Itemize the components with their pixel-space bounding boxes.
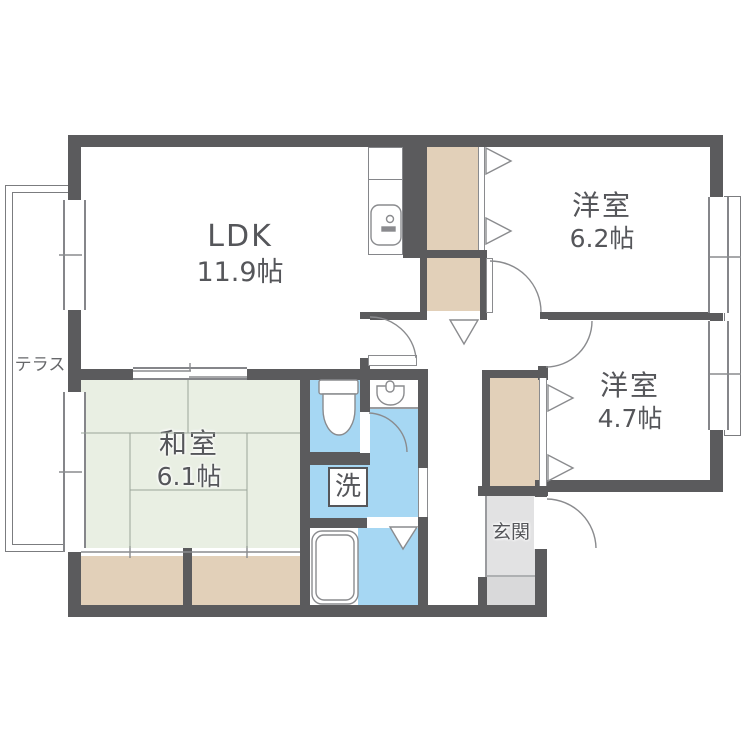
door-arc-toilet — [369, 413, 407, 452]
fold-door-closet-hall — [450, 320, 478, 344]
label-yoshitsu-b: 洋室 4.7帖 — [530, 368, 730, 434]
fold-door-closet-b-2 — [548, 455, 573, 481]
closet-track-line — [81, 546, 300, 558]
washitsu-size: 6.1帖 — [89, 461, 289, 492]
kitchen-faucet-handle — [382, 227, 395, 231]
label-yoshitsu-a: 洋室 6.2帖 — [502, 188, 702, 254]
toilet-bowl — [323, 394, 355, 435]
ldk-name: LDK — [140, 218, 340, 256]
kitchen-sink — [371, 205, 401, 245]
toilet-tank — [319, 380, 358, 394]
fold-door-closet-a-1 — [486, 148, 511, 174]
door-arc-ldk — [370, 317, 416, 358]
washitsu-name: 和室 — [89, 426, 289, 461]
washing-machine-pan: 洗 — [328, 467, 368, 507]
label-genkan: 玄関 — [487, 521, 535, 545]
floor-plan: LDK 11.9帖 洋室 6.2帖 洋室 4.7帖 和室 6.1帖 玄関 テラス… — [0, 0, 750, 750]
yoshitsu-a-size: 6.2帖 — [502, 223, 702, 254]
door-arc-yoshitsu-a — [490, 261, 541, 312]
ldk-size: 11.9帖 — [140, 256, 340, 290]
sliding-door-lines — [133, 363, 247, 377]
label-washitsu: 和室 6.1帖 — [89, 426, 289, 492]
label-terrace: テラス — [8, 355, 72, 376]
label-ldk: LDK 11.9帖 — [140, 218, 340, 289]
door-arc-yoshitsu-b — [546, 321, 592, 367]
washbasin-tap — [386, 381, 394, 392]
door-arc-entrance — [547, 499, 596, 548]
label-laundry: 洗 — [335, 471, 361, 504]
yoshitsu-b-name: 洋室 — [530, 368, 730, 403]
yoshitsu-b-size: 4.7帖 — [530, 403, 730, 434]
bathtub — [312, 531, 358, 604]
yoshitsu-a-name: 洋室 — [502, 188, 702, 223]
fold-door-bathroom — [390, 527, 417, 549]
